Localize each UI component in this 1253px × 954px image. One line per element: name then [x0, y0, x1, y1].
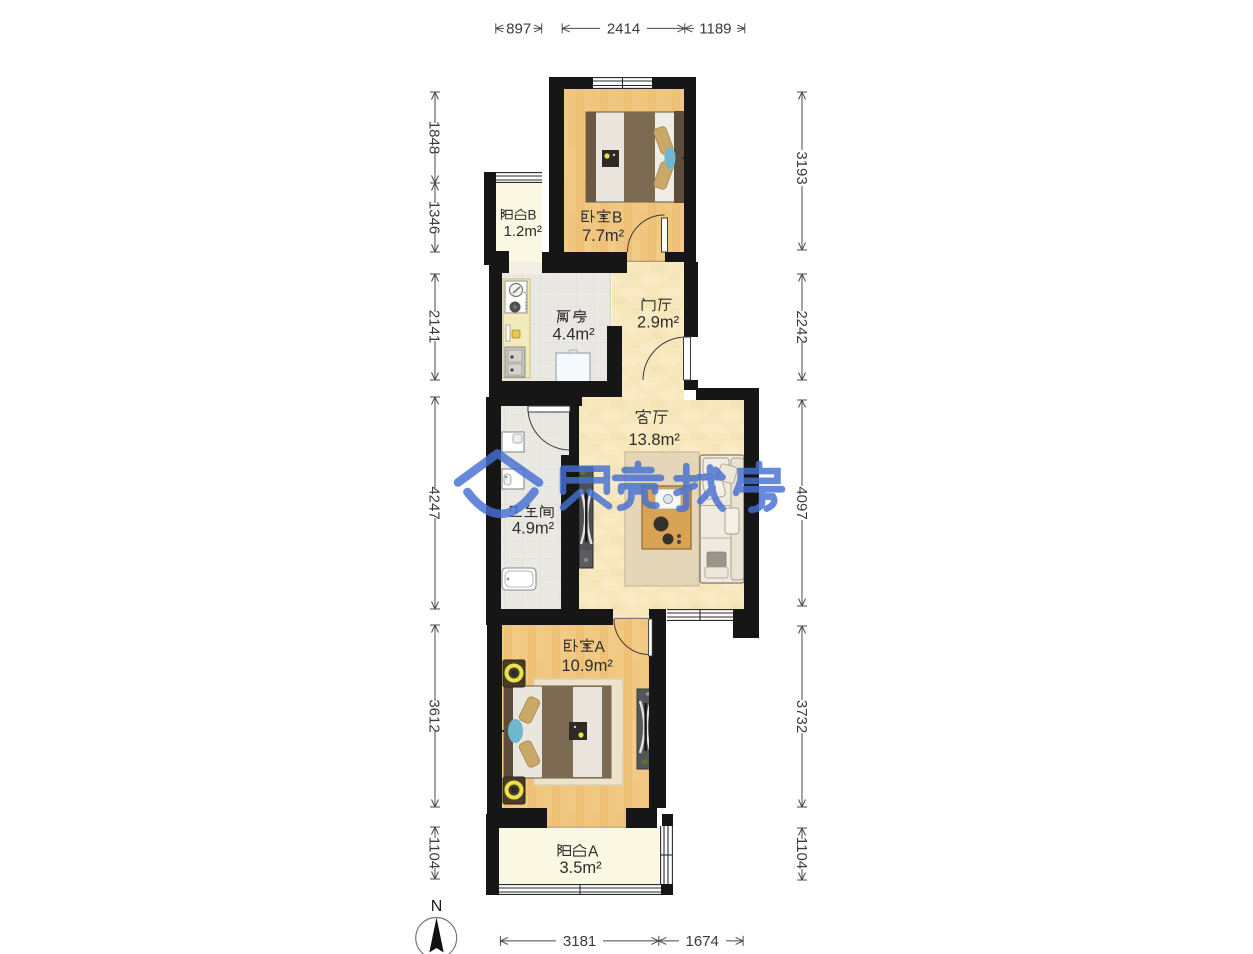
svg-text:3181: 3181 — [563, 933, 596, 950]
svg-text:1346: 1346 — [426, 201, 443, 234]
svg-text:1.2m²: 1.2m² — [504, 223, 542, 240]
svg-text:2141: 2141 — [426, 310, 443, 343]
svg-text:1104: 1104 — [426, 837, 443, 869]
svg-text:A: A — [595, 639, 606, 656]
svg-text:1104: 1104 — [793, 837, 810, 869]
svg-text:13.8m²: 13.8m² — [629, 431, 681, 449]
svg-text:3.5m²: 3.5m² — [560, 859, 603, 877]
svg-text:3732: 3732 — [793, 700, 810, 733]
svg-text:2242: 2242 — [793, 310, 810, 343]
svg-text:1848: 1848 — [426, 121, 443, 154]
svg-text:1674: 1674 — [686, 933, 719, 950]
svg-text:1189: 1189 — [699, 20, 731, 37]
svg-text:B: B — [612, 210, 622, 227]
svg-text:3612: 3612 — [426, 699, 443, 732]
svg-text:4097: 4097 — [793, 486, 810, 519]
svg-text:4.9m²: 4.9m² — [512, 520, 555, 538]
svg-text:10.9m²: 10.9m² — [562, 657, 614, 675]
svg-text:2414: 2414 — [607, 20, 640, 37]
svg-text:A: A — [588, 844, 599, 861]
svg-text:4.4m²: 4.4m² — [553, 326, 596, 344]
svg-text:4247: 4247 — [426, 486, 443, 519]
svg-text:3193: 3193 — [793, 151, 810, 184]
svg-text:2.9m²: 2.9m² — [637, 314, 680, 332]
svg-text:N: N — [431, 898, 443, 915]
svg-text:7.7m²: 7.7m² — [582, 227, 625, 245]
svg-text:897: 897 — [506, 20, 531, 37]
svg-text:B: B — [528, 208, 537, 223]
